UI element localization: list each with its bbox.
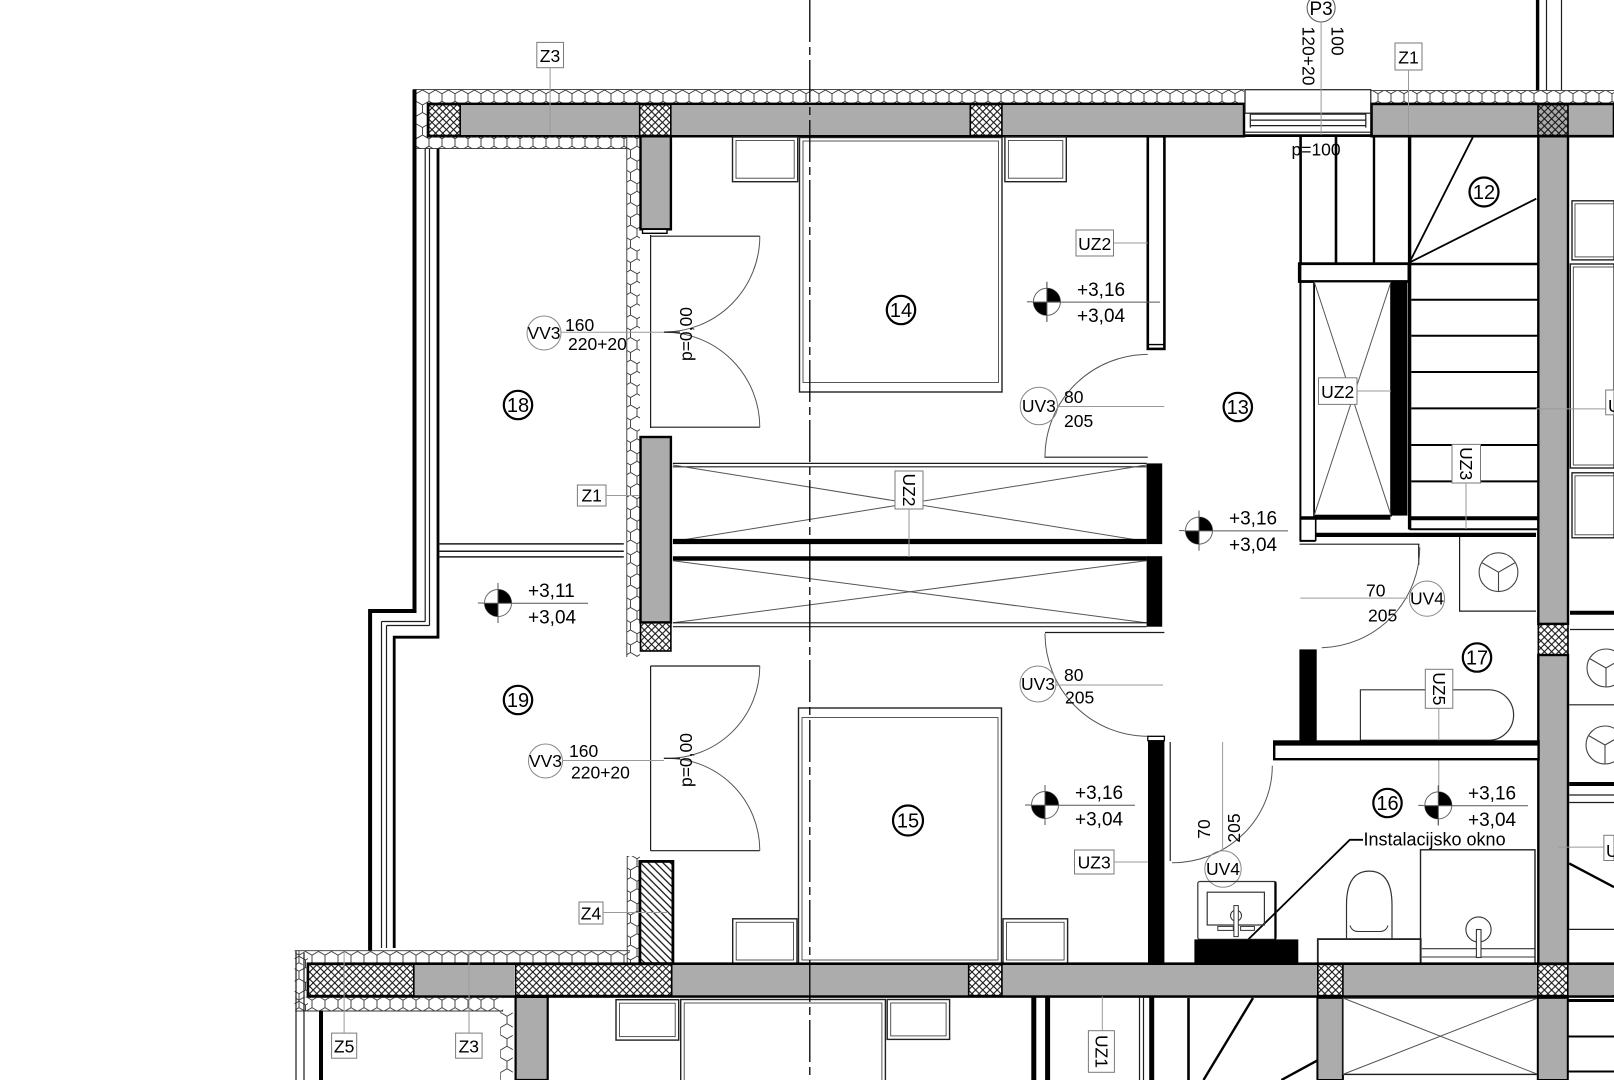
svg-text:+3,04: +3,04 xyxy=(1075,809,1124,830)
svg-text:+3,04: +3,04 xyxy=(1229,535,1278,556)
svg-text:+3,04: +3,04 xyxy=(1468,810,1517,831)
svg-text:120+20: 120+20 xyxy=(1299,27,1319,86)
svg-text:p=0,00: p=0,00 xyxy=(676,733,696,787)
svg-text:205: 205 xyxy=(1224,813,1244,842)
svg-text:Z1: Z1 xyxy=(1398,48,1418,68)
svg-text:13: 13 xyxy=(1227,397,1249,419)
svg-text:UZ5: UZ5 xyxy=(1429,672,1449,705)
svg-text:18: 18 xyxy=(507,395,529,417)
svg-text:Z3: Z3 xyxy=(540,46,560,66)
svg-text:+3,16: +3,16 xyxy=(1077,280,1125,301)
svg-text:19: 19 xyxy=(507,690,529,712)
svg-text:+3,04: +3,04 xyxy=(1077,306,1126,327)
svg-text:14: 14 xyxy=(890,300,912,322)
svg-text:UZ2: UZ2 xyxy=(1078,234,1111,254)
svg-text:UZ2: UZ2 xyxy=(899,473,919,506)
svg-text:220+20: 220+20 xyxy=(568,334,627,354)
svg-text:UV3: UV3 xyxy=(1022,396,1056,416)
svg-text:P3: P3 xyxy=(1309,0,1332,20)
svg-text:160: 160 xyxy=(569,741,598,761)
svg-text:p=0,00: p=0,00 xyxy=(676,307,696,361)
svg-text:VV3: VV3 xyxy=(529,751,562,771)
svg-text:205: 205 xyxy=(1065,688,1094,708)
svg-text:205: 205 xyxy=(1064,411,1093,431)
svg-text:+3,04: +3,04 xyxy=(528,607,577,628)
svg-text:UZ3: UZ3 xyxy=(1078,853,1111,873)
svg-text:80: 80 xyxy=(1064,665,1084,685)
svg-text:+3,16: +3,16 xyxy=(1468,783,1516,804)
svg-text:Z3: Z3 xyxy=(459,1037,479,1057)
svg-text:16: 16 xyxy=(1376,793,1398,815)
svg-text:Z1: Z1 xyxy=(581,486,601,506)
svg-text:80: 80 xyxy=(1064,387,1084,407)
svg-text:U: U xyxy=(1608,396,1614,416)
svg-text:Z5: Z5 xyxy=(334,1037,354,1057)
svg-text:UZ3: UZ3 xyxy=(1456,447,1476,480)
svg-text:+3,16: +3,16 xyxy=(1229,509,1277,530)
svg-text:UZ1: UZ1 xyxy=(1091,1035,1111,1068)
svg-text:160: 160 xyxy=(565,315,594,335)
svg-text:12: 12 xyxy=(1473,182,1495,204)
svg-text:U: U xyxy=(1606,841,1614,861)
svg-text:Z4: Z4 xyxy=(581,904,602,924)
svg-text:70: 70 xyxy=(1194,819,1214,839)
svg-text:UZ2: UZ2 xyxy=(1321,382,1354,402)
svg-text:+3,16: +3,16 xyxy=(1075,783,1123,804)
svg-text:100: 100 xyxy=(1328,26,1348,55)
svg-text:Instalacijsko okno: Instalacijsko okno xyxy=(1364,830,1506,850)
svg-text:15: 15 xyxy=(897,811,919,833)
svg-text:+3,11: +3,11 xyxy=(528,581,575,602)
svg-text:220+20: 220+20 xyxy=(571,763,630,783)
svg-text:17: 17 xyxy=(1466,648,1488,670)
svg-text:VV3: VV3 xyxy=(527,323,560,343)
svg-text:p=100: p=100 xyxy=(1292,140,1341,160)
svg-text:70: 70 xyxy=(1366,580,1386,600)
svg-text:UV3: UV3 xyxy=(1021,674,1055,694)
svg-text:205: 205 xyxy=(1368,605,1397,625)
svg-text:UV4: UV4 xyxy=(1410,589,1444,609)
svg-text:UV4: UV4 xyxy=(1206,859,1240,879)
